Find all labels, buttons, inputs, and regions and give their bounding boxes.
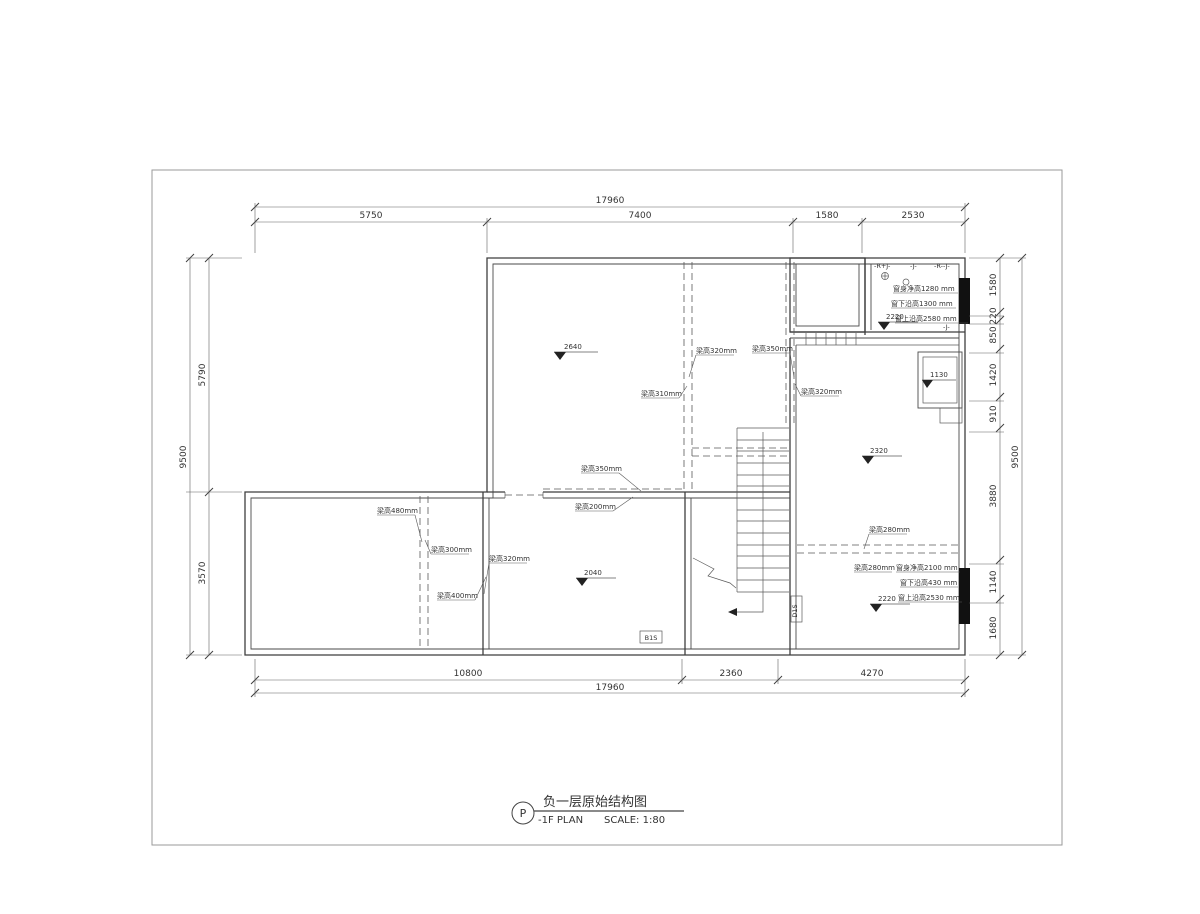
svg-text:2040: 2040 <box>584 569 602 577</box>
plan-title-en: -1F PLAN <box>538 815 583 826</box>
svg-text:梁高310mm: 梁高310mm <box>641 389 682 398</box>
window-bar-top-right <box>959 278 970 324</box>
dim-bottom-3: 4270 <box>861 669 884 679</box>
door-tag-2: D1S <box>791 604 799 617</box>
room-tag-1: -R+J- <box>874 262 891 270</box>
dim-bottom-1: 10800 <box>454 669 483 679</box>
window-top-head: 窗上沿高2580 mm <box>895 314 957 323</box>
dim-top-2: 7400 <box>629 211 652 221</box>
room-tag-4: -J- <box>943 323 950 331</box>
svg-text:梁高320mm: 梁高320mm <box>696 346 737 355</box>
plan-number: P <box>520 807 527 820</box>
room-tag-2: -J- <box>910 262 917 270</box>
dim-right-7: 1140 <box>989 570 999 593</box>
window-bar-bottom-right <box>959 568 970 624</box>
window-bottom-sill: 窗下沿高430 mm <box>900 578 957 587</box>
dim-top-total: 17960 <box>596 196 625 206</box>
dim-left-total: 9500 <box>179 445 189 468</box>
svg-text:梁高320mm: 梁高320mm <box>489 554 530 563</box>
dim-bottom-total: 17960 <box>596 683 625 693</box>
svg-text:梁高300mm: 梁高300mm <box>431 545 472 554</box>
beam-label-12: 梁高280mm <box>854 563 895 572</box>
dim-bottom-2: 2360 <box>720 669 743 679</box>
svg-text:梁高480mm: 梁高480mm <box>377 506 418 515</box>
svg-text:1130: 1130 <box>930 371 948 379</box>
dim-top-1: 5750 <box>360 211 383 221</box>
dim-left-2: 3570 <box>198 561 208 584</box>
dim-left-1: 5790 <box>198 363 208 386</box>
svg-text:2220: 2220 <box>878 595 896 603</box>
dim-right-5: 910 <box>989 405 999 422</box>
dim-right-3: 850 <box>989 326 999 343</box>
dim-right-8: 1680 <box>989 616 999 639</box>
dim-right-1: 1580 <box>989 273 999 296</box>
dim-top-4: 2530 <box>902 211 925 221</box>
window-top-height: 窗身净高1280 mm <box>893 284 955 293</box>
svg-text:2320: 2320 <box>870 447 888 455</box>
dim-right-6: 3880 <box>989 484 999 507</box>
door-tag-1: B1S <box>645 634 658 642</box>
plan-scale: SCALE: 1:80 <box>604 815 665 826</box>
svg-text:2640: 2640 <box>564 343 582 351</box>
room-tag-3: -R--J- <box>934 262 950 270</box>
svg-text:梁高200mm: 梁高200mm <box>575 502 616 511</box>
window-top-sill: 窗下沿高1300 mm <box>891 299 953 308</box>
svg-text:梁高320mm: 梁高320mm <box>801 387 842 396</box>
svg-text:梁高280mm: 梁高280mm <box>869 525 910 534</box>
floor-plan-drawing: 17960 5750 7400 1580 2530 10800 2360 427… <box>0 0 1200 910</box>
floor-plan-canvas: 17960 5750 7400 1580 2530 10800 2360 427… <box>0 0 1200 910</box>
plan-title-cn: 负一层原始结构图 <box>543 795 647 810</box>
svg-text:梁高400mm: 梁高400mm <box>437 591 478 600</box>
dim-right-4: 1420 <box>989 363 999 386</box>
svg-text:梁高350mm: 梁高350mm <box>581 464 622 473</box>
dim-top-3: 1580 <box>816 211 839 221</box>
svg-text:梁高350mm: 梁高350mm <box>752 344 793 353</box>
window-bottom-height: 窗身净高2100 mm <box>896 563 958 572</box>
window-bottom-head: 窗上沿高2530 mm <box>898 593 960 602</box>
dim-right-total: 9500 <box>1011 445 1021 468</box>
